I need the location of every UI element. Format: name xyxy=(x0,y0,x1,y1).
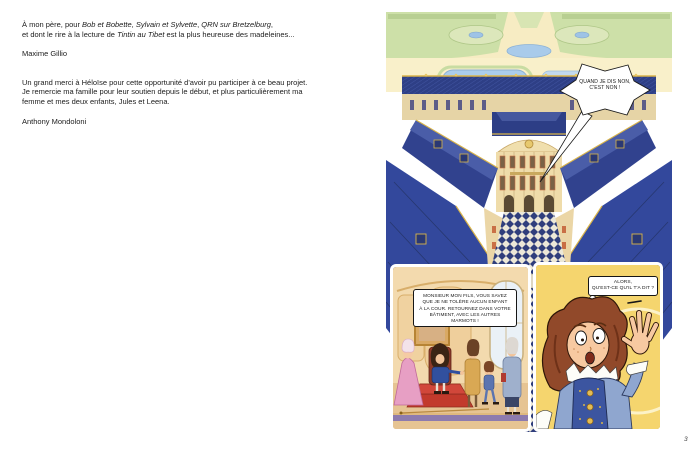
dedication-paragraph-2: Un grand merci à Héloïse pour cette oppo… xyxy=(22,78,356,107)
dedication-line: Un grand merci à Héloïse pour cette oppo… xyxy=(22,78,356,88)
speech-bubble-shout-text: QUAND JE DIS NON, C'EST NON ! xyxy=(569,79,641,92)
author-name-2: Anthony Mondoloni xyxy=(22,117,356,127)
comic-artwork: QUAND JE DIS NON, C'EST NON ! xyxy=(386,12,672,432)
panel-throne-room: MONSIEUR MON FILS, VOUS SAVEZ QUE JE NE … xyxy=(390,264,531,432)
dedication-line: À mon père, pour Bob et Bobette, Sylvain… xyxy=(22,20,356,30)
page-number: 3 xyxy=(684,436,688,443)
left-page: À mon père, pour Bob et Bobette, Sylvain… xyxy=(0,0,350,456)
dedication-block: À mon père, pour Bob et Bobette, Sylvain… xyxy=(22,20,356,126)
dedication-paragraph-1: À mon père, pour Bob et Bobette, Sylvain… xyxy=(22,20,356,39)
dedication-line: Je remercie ma famille pour leur soutien… xyxy=(22,87,356,97)
book-spread: À mon père, pour Bob et Bobette, Sylvain… xyxy=(0,0,700,456)
right-page: QUAND JE DIS NON, C'EST NON ! xyxy=(350,0,700,456)
speech-bubble-king: MONSIEUR MON FILS, VOUS SAVEZ QUE JE NE … xyxy=(413,289,517,327)
speech-bubble-friend: ALORS, QU'EST-CE QU'IL T'A DIT ? xyxy=(588,276,658,296)
dedication-line: femme et mes deux enfants, Jules et Leen… xyxy=(22,97,356,107)
panel-louis-surprised: ALORS, QU'EST-CE QU'IL T'A DIT ? xyxy=(533,262,663,432)
dedication-line: et dont le rire à la lecture de Tintin a… xyxy=(22,30,356,40)
author-name-1: Maxime Gillio xyxy=(22,49,356,59)
